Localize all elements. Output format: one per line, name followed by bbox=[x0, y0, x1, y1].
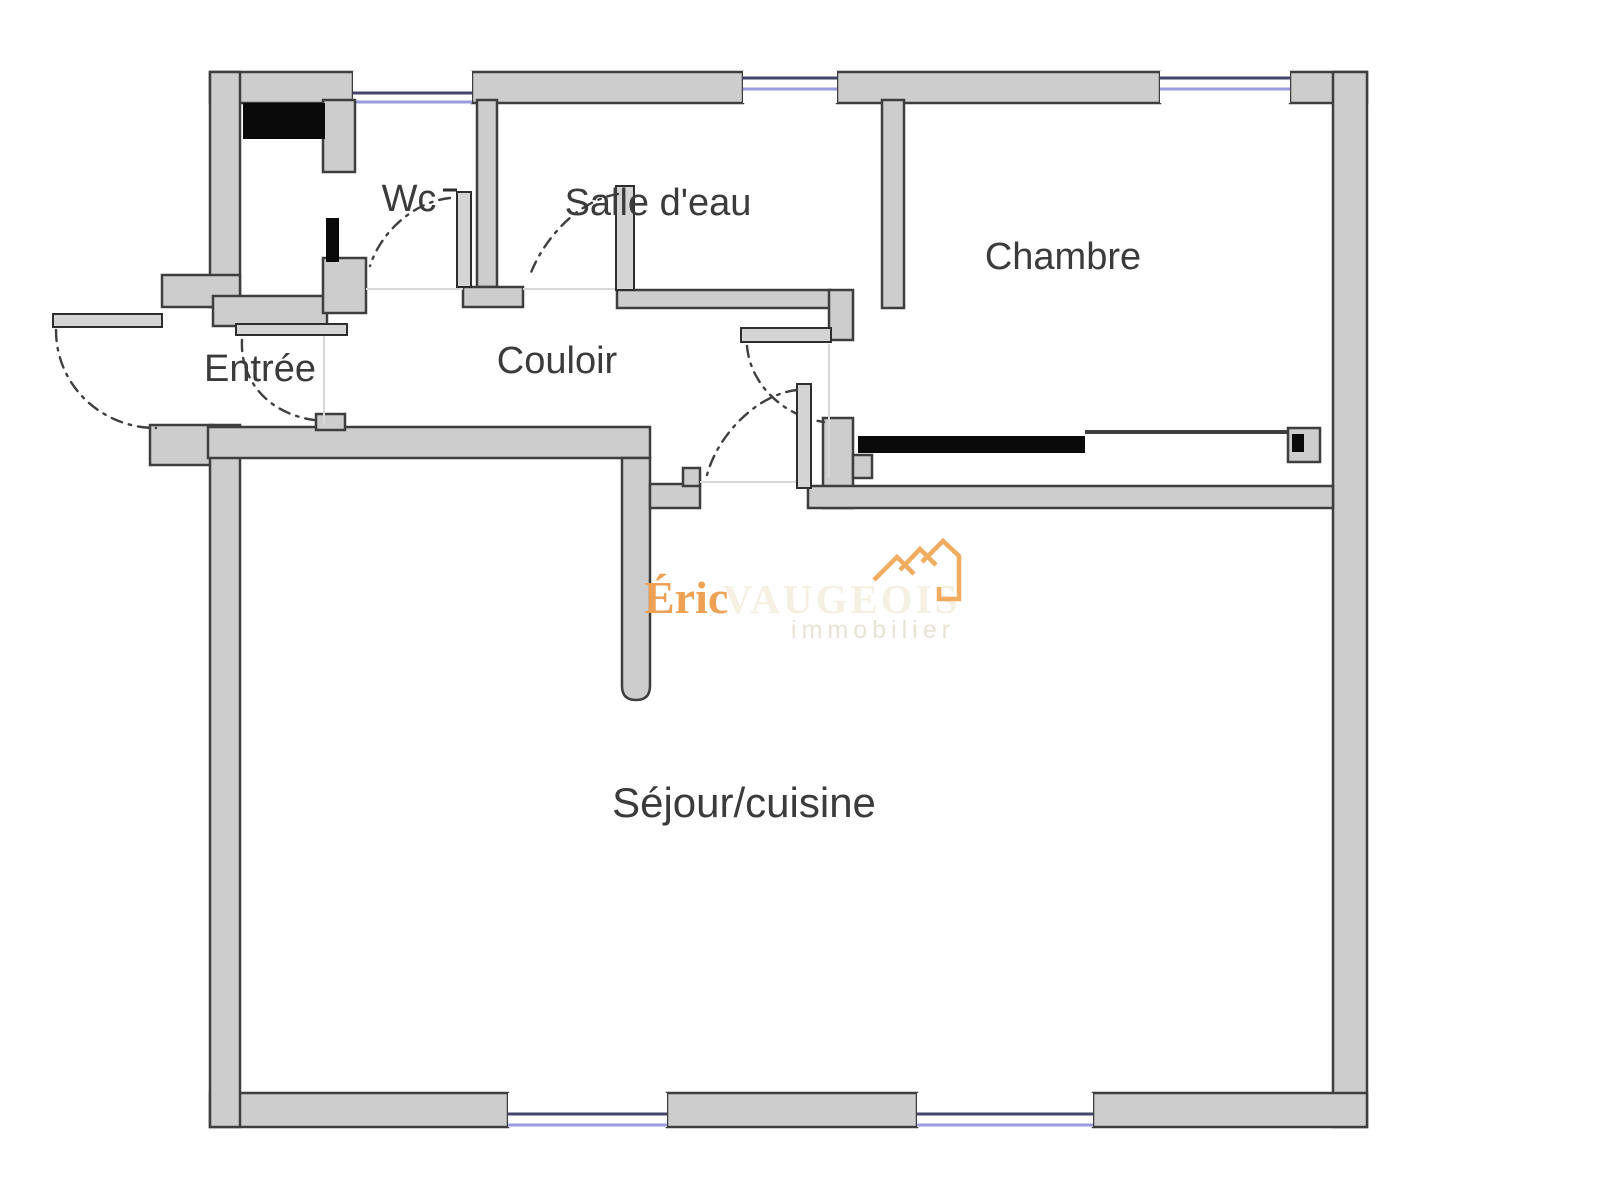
closet-door-panel bbox=[326, 218, 339, 262]
chambre-door bbox=[707, 384, 811, 488]
bottom-wall-segment bbox=[667, 1093, 917, 1127]
couloir-door-jamb bbox=[683, 468, 700, 486]
closet-bottom-wall bbox=[213, 296, 327, 326]
salle-deau-bottom-wall bbox=[617, 290, 831, 308]
entry-door bbox=[53, 314, 162, 428]
black-fixtures bbox=[243, 103, 1304, 453]
floor-plan-page: Entrée Wc Salle d'eau Couloir Chambre Sé… bbox=[0, 0, 1600, 1199]
couloir-wall-step bbox=[316, 414, 345, 430]
couloir-bottom-wall-right bbox=[650, 484, 700, 508]
window-chambre bbox=[1160, 71, 1290, 103]
left-wall-lower bbox=[210, 425, 240, 1127]
room-label-entree: Entrée bbox=[204, 348, 316, 390]
door-swing-arc bbox=[747, 346, 824, 422]
watermark-brand-first: Éric bbox=[644, 572, 728, 623]
room-label-wc: Wc bbox=[382, 178, 437, 220]
left-wall-upper bbox=[210, 72, 240, 307]
window-opening bbox=[917, 1093, 1093, 1127]
door-swing-arc bbox=[707, 390, 797, 475]
window-opening bbox=[1160, 71, 1290, 103]
bottom-wall-segment bbox=[210, 1093, 508, 1127]
wc-right-wall bbox=[477, 100, 497, 287]
door-swing-arc bbox=[56, 330, 156, 428]
top-wall-segment bbox=[472, 72, 743, 103]
door-leaf bbox=[797, 384, 811, 488]
wardrobe-sliding-door bbox=[858, 436, 1085, 453]
watermark-tagline: immobilier bbox=[791, 616, 955, 644]
window-opening bbox=[353, 71, 472, 103]
entry-door-jamb-bottom bbox=[150, 425, 213, 465]
wardrobe-front-line bbox=[1085, 430, 1288, 434]
room-label-salle-deau: Salle d'eau bbox=[565, 182, 752, 224]
wardrobe-jamb-tick bbox=[1292, 434, 1304, 452]
window-opening bbox=[508, 1093, 667, 1127]
door-leaf bbox=[741, 328, 831, 342]
wc-wall-foot bbox=[463, 287, 523, 307]
right-wall bbox=[1333, 72, 1367, 1127]
agency-watermark: Éric VAUGEOIS immobilier bbox=[644, 541, 960, 644]
room-label-chambre: Chambre bbox=[985, 236, 1141, 278]
chambre-bottom-wall bbox=[808, 486, 1333, 508]
door-leaf bbox=[53, 314, 162, 327]
chambre-nook-notch bbox=[853, 455, 872, 478]
bottom-wall-segment bbox=[1093, 1093, 1367, 1127]
room-label-couloir: Couloir bbox=[497, 340, 618, 382]
window-opening bbox=[743, 71, 837, 103]
duct-black-box bbox=[243, 103, 325, 139]
top-wall-segment bbox=[837, 72, 1160, 103]
room-label-sejour: Séjour/cuisine bbox=[612, 779, 876, 826]
door-leaf bbox=[457, 192, 471, 287]
window-salle-deau bbox=[743, 71, 837, 103]
salle-deau-right-wall bbox=[882, 100, 904, 308]
window-sejour-left bbox=[508, 1093, 667, 1127]
couloir-bottom-wall bbox=[208, 427, 650, 458]
door-leaf bbox=[236, 324, 347, 335]
floor-plan: Entrée Wc Salle d'eau Couloir Chambre Sé… bbox=[0, 0, 1600, 1199]
salle-deau-door-jamb bbox=[829, 290, 853, 340]
entree-couloir-junction-wall bbox=[323, 258, 366, 313]
window-sejour-right bbox=[917, 1093, 1093, 1127]
closet-right-wall bbox=[323, 100, 355, 172]
window-wc bbox=[353, 71, 472, 103]
